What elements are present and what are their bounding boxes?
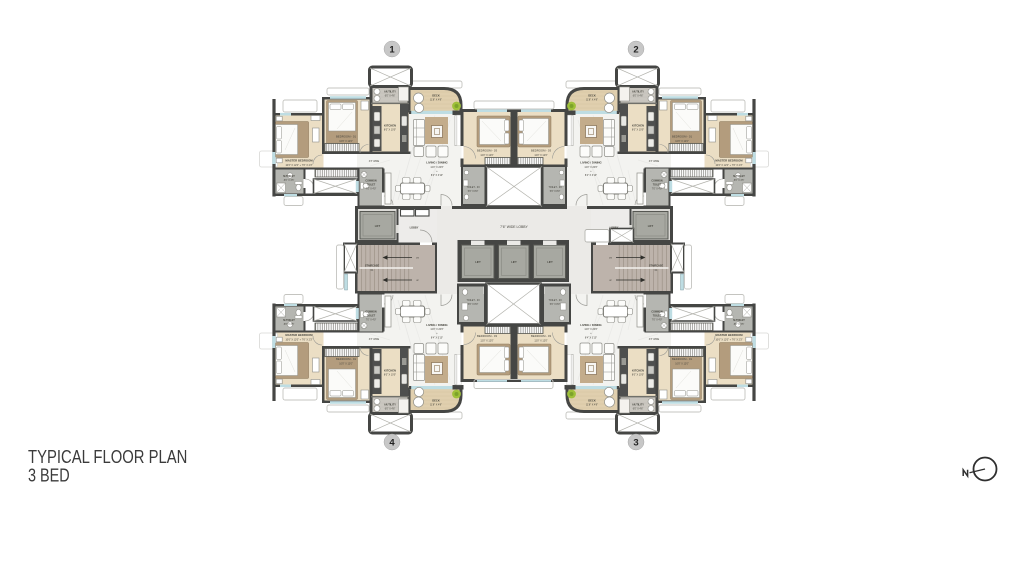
svg-text:5'0" X 8'0": 5'0" X 8'0" xyxy=(468,191,479,193)
svg-text:DECK: DECK xyxy=(588,94,596,98)
svg-text:A/UTILITY: A/UTILITY xyxy=(384,404,396,407)
svg-text:10'0" X 12'0": 10'0" X 12'0" xyxy=(675,362,689,365)
svg-text:3'3" WIDE: 3'3" WIDE xyxy=(369,339,380,341)
svg-text:LIFT: LIFT xyxy=(475,260,481,264)
svg-text:8'0" X 4'5": 8'0" X 4'5" xyxy=(284,324,295,326)
svg-text:M.TOILET: M.TOILET xyxy=(283,319,295,322)
svg-text:11'0" X 20'6": 11'0" X 20'6" xyxy=(584,328,597,331)
svg-text:10'6" X 12'0" + 7'6" X 2'3": 10'6" X 12'0" + 7'6" X 2'3" xyxy=(285,164,312,167)
svg-text:11'8" X 4'9": 11'8" X 4'9" xyxy=(430,99,442,102)
svg-text:TOILET - 03: TOILET - 03 xyxy=(466,299,480,302)
svg-text:6'0" X 4'6": 6'0" X 4'6" xyxy=(385,95,396,97)
svg-text:TOILET - 03: TOILET - 03 xyxy=(548,186,562,189)
svg-text:3 BED: 3 BED xyxy=(28,465,70,486)
svg-text:TOILET: TOILET xyxy=(653,315,662,318)
svg-text:6'0" X 4'6": 6'0" X 4'6" xyxy=(633,95,644,97)
svg-text:7'6" WIDE LOBBY: 7'6" WIDE LOBBY xyxy=(500,225,528,229)
svg-text:5'0" X 8'0": 5'0" X 8'0" xyxy=(468,304,479,306)
svg-text:10'6" X 12'0" + 7'6" X 2'3": 10'6" X 12'0" + 7'6" X 2'3" xyxy=(285,338,312,341)
svg-text:8'0" X 10'0": 8'0" X 10'0" xyxy=(632,129,644,132)
svg-text:TOILET: TOILET xyxy=(367,183,376,186)
svg-text:LIVING / DINING: LIVING / DINING xyxy=(580,161,601,165)
svg-text:TOILET: TOILET xyxy=(653,183,662,186)
svg-text:M.TOILET: M.TOILET xyxy=(733,175,745,178)
svg-text:KITCHEN: KITCHEN xyxy=(632,124,644,128)
svg-text:KITCHEN: KITCHEN xyxy=(632,368,644,372)
svg-text:BEDROOM - 01: BEDROOM - 01 xyxy=(672,135,692,139)
svg-text:7'0" X 4'0": 7'0" X 4'0" xyxy=(366,319,377,321)
svg-text:10'6" X 12'0" + 7'6" X 2'3": 10'6" X 12'0" + 7'6" X 2'3" xyxy=(715,164,742,167)
svg-text:8'4" X 3'10": 8'4" X 3'10" xyxy=(585,174,597,177)
svg-text:DECK: DECK xyxy=(432,398,440,402)
svg-text:10'6" X 12'0" + 7'6" X 2'3": 10'6" X 12'0" + 7'6" X 2'3" xyxy=(715,338,742,341)
svg-text:BEDROOM - 03: BEDROOM - 03 xyxy=(477,334,497,338)
svg-text:5'0" X 8'0": 5'0" X 8'0" xyxy=(550,191,561,193)
svg-text:LIVING / DINING: LIVING / DINING xyxy=(426,161,447,165)
svg-text:COMMON: COMMON xyxy=(651,180,662,183)
svg-text:6'0" X 4'6": 6'0" X 4'6" xyxy=(385,408,396,410)
svg-text:BEDROOM - 01: BEDROOM - 01 xyxy=(336,135,356,139)
svg-text:11'0" X 12'0": 11'0" X 12'0" xyxy=(480,339,493,342)
svg-text:8'0" X 4'5": 8'0" X 4'5" xyxy=(284,180,295,182)
svg-text:LIFT: LIFT xyxy=(648,224,654,228)
svg-text:8'4" X 3'10": 8'4" X 3'10" xyxy=(431,336,443,339)
svg-text:7'0" X 4'0": 7'0" X 4'0" xyxy=(366,188,377,190)
svg-text:COMMON: COMMON xyxy=(365,180,376,183)
svg-text:BEDROOM - 03: BEDROOM - 03 xyxy=(531,149,551,153)
svg-text:11'8" X 4'9": 11'8" X 4'9" xyxy=(586,403,598,406)
svg-text:3'3" WIDE: 3'3" WIDE xyxy=(649,161,660,163)
svg-text:MASTER BEDROOM: MASTER BEDROOM xyxy=(285,159,313,163)
svg-text:BEDROOM - 03: BEDROOM - 03 xyxy=(531,334,551,338)
svg-text:8'0" X 10'0": 8'0" X 10'0" xyxy=(384,129,396,132)
svg-text:11'0" X 20'6": 11'0" X 20'6" xyxy=(584,166,597,169)
svg-text:A/UTILITY: A/UTILITY xyxy=(632,404,644,407)
svg-text:3'3" WIDE: 3'3" WIDE xyxy=(369,161,380,163)
svg-text:MASTER BEDROOM: MASTER BEDROOM xyxy=(715,159,743,163)
svg-text:LIFT: LIFT xyxy=(375,224,381,228)
svg-text:DECK: DECK xyxy=(432,94,440,98)
svg-text:LOBBY: LOBBY xyxy=(610,227,619,230)
svg-text:COMMON: COMMON xyxy=(365,311,376,314)
svg-text:5'0" X 8'0": 5'0" X 8'0" xyxy=(550,304,561,306)
svg-text:LIVING / DINING: LIVING / DINING xyxy=(580,323,601,327)
svg-text:11'8" X 4'9": 11'8" X 4'9" xyxy=(586,99,598,102)
svg-text:LOBBY: LOBBY xyxy=(410,227,419,230)
svg-text:8'4" X 3'10": 8'4" X 3'10" xyxy=(431,174,443,177)
svg-text:11'0" X 12'0": 11'0" X 12'0" xyxy=(534,339,547,342)
svg-text:COMMON: COMMON xyxy=(651,311,662,314)
svg-text:LIFT: LIFT xyxy=(511,260,517,264)
svg-text:3: 3 xyxy=(633,437,638,448)
svg-text:3'3" WIDE: 3'3" WIDE xyxy=(649,339,660,341)
svg-text:LIVING / DINING: LIVING / DINING xyxy=(426,323,447,327)
svg-text:MASTER BEDROOM: MASTER BEDROOM xyxy=(285,333,313,337)
svg-text:11'0" X 20'6": 11'0" X 20'6" xyxy=(430,166,443,169)
svg-text:BEDROOM - 01: BEDROOM - 01 xyxy=(336,357,356,361)
svg-text:8'4" X 3'10": 8'4" X 3'10" xyxy=(585,336,597,339)
svg-text:UP: UP xyxy=(416,280,420,282)
svg-text:4: 4 xyxy=(389,437,395,448)
svg-text:M.TOILET: M.TOILET xyxy=(283,175,295,178)
svg-text:DN: DN xyxy=(416,258,420,260)
svg-text:8'0" X 4'5": 8'0" X 4'5" xyxy=(734,324,745,326)
svg-text:A/UTILITY: A/UTILITY xyxy=(384,91,396,94)
svg-text:10'0" X 12'0": 10'0" X 12'0" xyxy=(339,362,353,365)
svg-text:11'0" X 12'0": 11'0" X 12'0" xyxy=(534,154,547,157)
svg-text:8'0" X 10'0": 8'0" X 10'0" xyxy=(632,373,644,376)
svg-text:BEDROOM - 01: BEDROOM - 01 xyxy=(672,357,692,361)
svg-text:UP: UP xyxy=(609,280,613,282)
svg-text:7'0" X 4'0": 7'0" X 4'0" xyxy=(652,188,663,190)
svg-text:A/UTILITY: A/UTILITY xyxy=(632,91,644,94)
svg-text:MASTER BEDROOM: MASTER BEDROOM xyxy=(715,333,743,337)
svg-text:11'8" X 4'9": 11'8" X 4'9" xyxy=(430,403,442,406)
svg-text:KITCHEN: KITCHEN xyxy=(384,124,396,128)
svg-text:8'0" X 10'0": 8'0" X 10'0" xyxy=(384,373,396,376)
svg-text:M.TOILET: M.TOILET xyxy=(733,319,745,322)
svg-text:10'0" X 12'0": 10'0" X 12'0" xyxy=(675,140,689,143)
svg-text:TOILET - 03: TOILET - 03 xyxy=(466,186,480,189)
svg-text:DN: DN xyxy=(609,258,613,260)
svg-text:11'0" X 20'6": 11'0" X 20'6" xyxy=(430,328,443,331)
svg-text:7'0" X 4'0": 7'0" X 4'0" xyxy=(652,319,663,321)
svg-text:TOILET - 03: TOILET - 03 xyxy=(548,299,562,302)
svg-text:LIFT: LIFT xyxy=(547,260,553,264)
svg-text:STAIRCASE: STAIRCASE xyxy=(649,265,664,268)
svg-text:STAIRCASE: STAIRCASE xyxy=(365,265,380,268)
svg-text:2: 2 xyxy=(633,44,638,55)
svg-text:10'0" X 12'0": 10'0" X 12'0" xyxy=(339,140,353,143)
svg-text:1: 1 xyxy=(389,44,395,55)
svg-text:BEDROOM - 03: BEDROOM - 03 xyxy=(477,149,497,153)
svg-text:8'0" X 4'5": 8'0" X 4'5" xyxy=(734,180,745,182)
svg-text:6'0" X 4'6": 6'0" X 4'6" xyxy=(633,408,644,410)
svg-text:DECK: DECK xyxy=(588,398,596,402)
svg-text:11'0" X 12'0": 11'0" X 12'0" xyxy=(480,154,493,157)
svg-text:TOILET: TOILET xyxy=(367,315,376,318)
svg-text:KITCHEN: KITCHEN xyxy=(384,368,396,372)
